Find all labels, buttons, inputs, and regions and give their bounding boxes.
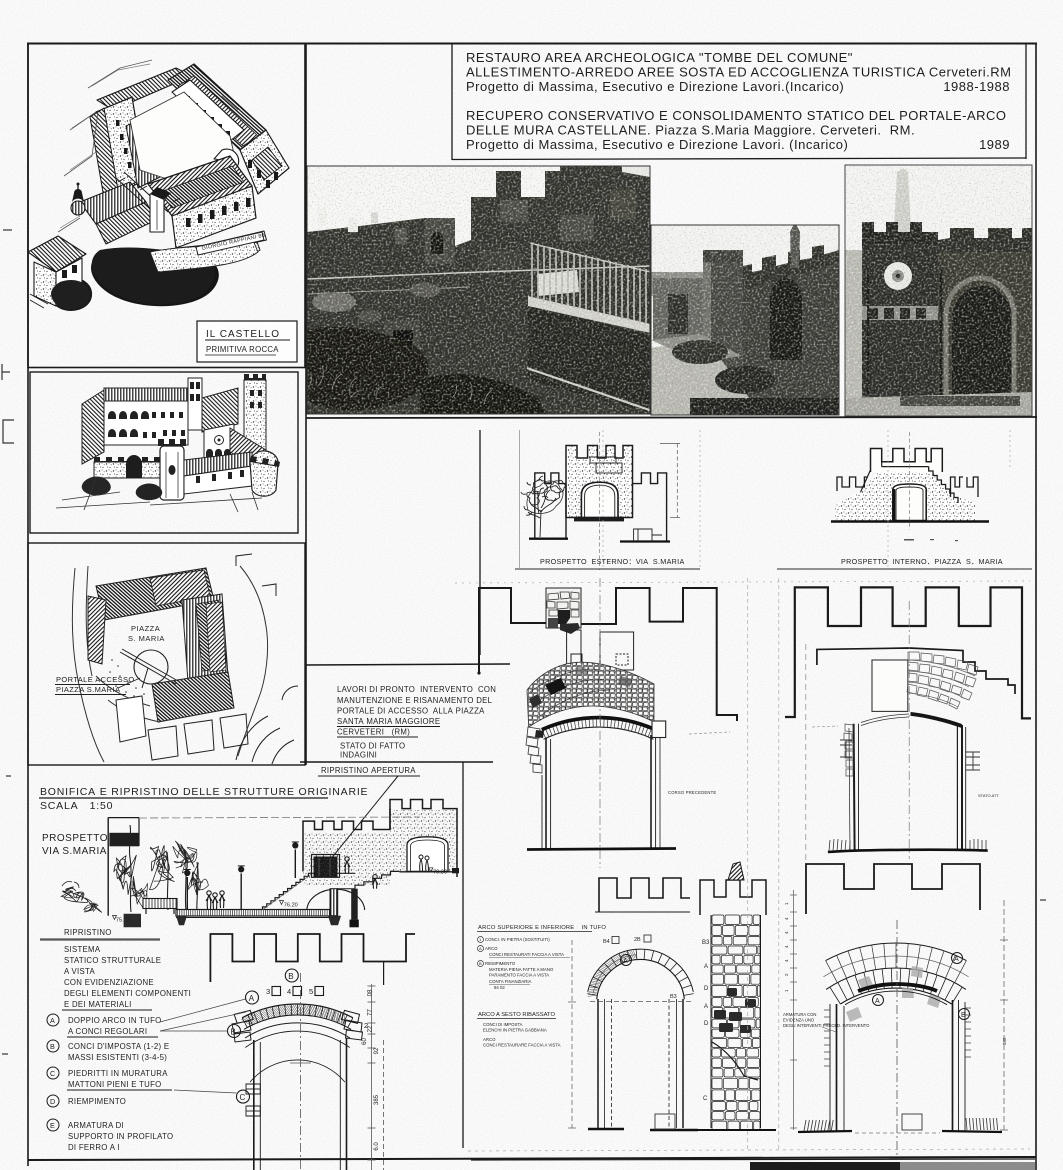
svg-text:DOPPIO ARCO IN TUFO: DOPPIO ARCO IN TUFO: [68, 1016, 162, 1025]
svg-text:DEGLI INTERVENTI PRECED. INTER: DEGLI INTERVENTI PRECED. INTERVENTO: [783, 1023, 870, 1028]
svg-text:SUPPORTO IN PROFILATO: SUPPORTO IN PROFILATO: [68, 1132, 173, 1141]
svg-text:STATO DI FATTO: STATO DI FATTO: [340, 742, 405, 751]
svg-text:A: A: [50, 1016, 55, 1025]
svg-text:INDAGINI: INDAGINI: [340, 751, 377, 760]
svg-text:DI FERRO A I: DI FERRO A I: [68, 1143, 120, 1152]
svg-text:PIAZZA S.MARIA: PIAZZA S.MARIA: [56, 685, 120, 694]
svg-text:ARCO: ARCO: [485, 946, 498, 951]
svg-text:A: A: [479, 946, 482, 951]
svg-text:ELENCHI IN PIETRA GABBIANA: ELENCHI IN PIETRA GABBIANA: [483, 1028, 547, 1033]
svg-text:B: B: [231, 1027, 236, 1036]
svg-text:6.0: 6.0: [374, 1142, 380, 1151]
svg-text:3: 3: [266, 987, 270, 996]
svg-text:B: B: [288, 972, 293, 981]
svg-text:1988-1988: 1988-1988: [943, 79, 1010, 94]
svg-text:B3: B3: [670, 994, 677, 1000]
svg-text:LAVORI DI PRONTO INTERVENTO: LAVORI DI PRONTO INTERVENTO CON: [337, 685, 496, 694]
svg-text:B: B: [479, 961, 482, 966]
svg-text:RIPRISTINO: RIPRISTINO: [64, 928, 112, 937]
svg-text:S. MARIA: S. MARIA: [128, 634, 165, 643]
svg-text:MASSI ESISTENTI (3-4-5): MASSI ESISTENTI (3-4-5): [68, 1053, 167, 1062]
svg-text:D: D: [704, 986, 709, 992]
svg-text:22: 22: [368, 1025, 374, 1032]
svg-text:Progetto di Massima, Esecutivo: Progetto di Massima, Esecutivo e Direzio…: [466, 137, 848, 152]
svg-text:E: E: [50, 1121, 55, 1130]
svg-text:SCALA 1:50: SCALA 1:50: [40, 800, 113, 812]
svg-text:385: 385: [374, 1094, 380, 1105]
svg-text:A: A: [875, 998, 880, 1005]
svg-text:BONIFICA E RIPRISTINO DELLE ST: BONIFICA E RIPRISTINO DELLE STRUTTURE OR…: [40, 786, 368, 798]
svg-text:75.72: 75.72: [116, 918, 130, 924]
svg-text:RIEMPIMENTO: RIEMPIMENTO: [68, 1097, 126, 1106]
svg-text:B: B: [50, 1042, 55, 1051]
svg-text:A VISTA: A VISTA: [64, 967, 95, 976]
svg-text:STATICO STRUTTURALE: STATICO STRUTTURALE: [64, 956, 161, 965]
svg-text:D: D: [704, 1021, 709, 1027]
svg-text:CONCI RESTAURATI FACCIA A VIS: CONCI RESTAURATI FACCIA A VISTA: [489, 952, 564, 957]
svg-text:PIAZZA: PIAZZA: [131, 624, 160, 633]
svg-text:CORSO PRECEDENTE: CORSO PRECEDENTE: [668, 790, 716, 795]
svg-text:SISTEMA: SISTEMA: [64, 945, 101, 954]
svg-text:1989: 1989: [979, 137, 1010, 152]
svg-text:B4: B4: [603, 939, 610, 945]
svg-text:EVIDENZA UNO: EVIDENZA UNO: [783, 1018, 815, 1023]
svg-text:2B: 2B: [634, 937, 641, 943]
svg-text:CONCI D'IMPOSTA (1-2) E: CONCI D'IMPOSTA (1-2) E: [68, 1042, 169, 1051]
svg-text:C: C: [240, 1093, 246, 1102]
svg-text:B3: B3: [702, 940, 710, 946]
svg-text:PRIMITIVA ROCCA: PRIMITIVA ROCCA: [206, 345, 279, 354]
svg-text:84 02: 84 02: [494, 985, 505, 990]
svg-text:A: A: [704, 1004, 708, 1010]
svg-text:CONCI RESTAURARE FACCIA A VIS: CONCI RESTAURARE FACCIA A VISTA: [483, 1043, 561, 1048]
svg-text:STATO ATT.: STATO ATT.: [978, 793, 999, 798]
svg-text:MANUTENZIONE E RISANAMENTO DEL: MANUTENZIONE E RISANAMENTO DEL: [337, 696, 493, 705]
svg-text:Progetto di Massima, Esecutivo: Progetto di Massima, Esecutivo e Direzio…: [466, 79, 844, 94]
svg-text:ARMATURA DI: ARMATURA DI: [68, 1121, 124, 1130]
svg-text:RIPRISTINO APERTURA: RIPRISTINO APERTURA: [321, 766, 416, 775]
svg-text:08: 08: [368, 989, 374, 996]
svg-text:RESTAURO AREA ARCHEOLOGICA "TO: RESTAURO AREA ARCHEOLOGICA "TOMBE DEL CO…: [466, 50, 853, 65]
svg-text:MATTONI PIENI E TUFO: MATTONI PIENI E TUFO: [68, 1080, 162, 1089]
svg-text:ARCO SUPERIORE E INFERIORE: ARCO SUPERIORE E INFERIORE IN TUFO: [478, 925, 606, 931]
svg-text:CERVETERI (RM): CERVETERI (RM): [337, 728, 410, 737]
svg-text:5: 5: [309, 987, 313, 996]
svg-text:PIEDRITTI IN MURATURA: PIEDRITTI IN MURATURA: [68, 1069, 168, 1078]
svg-text:RECUPERO CONSERVATIVO E CONSOL: RECUPERO CONSERVATIVO E CONSOLIDAMENTO S…: [466, 108, 1007, 123]
svg-text:60: 60: [362, 1038, 368, 1045]
svg-text:MATERIA PIENA FATTE A MANO: MATERIA PIENA FATTE A MANO: [489, 967, 554, 972]
svg-text:A CONCI REGOLARI: A CONCI REGOLARI: [68, 1027, 147, 1036]
svg-text:DEGLI ELEMENTI COMPONENTI: DEGLI ELEMENTI COMPONENTI: [64, 989, 191, 998]
svg-text:92: 92: [374, 1047, 380, 1054]
svg-text:VIA S.MARIA: VIA S.MARIA: [42, 846, 107, 857]
svg-text:76.20: 76.20: [284, 903, 298, 909]
svg-text:IL CASTELLO: IL CASTELLO: [206, 329, 280, 340]
svg-text:A: A: [954, 956, 959, 963]
svg-text:ARMATURA CON: ARMATURA CON: [783, 1012, 816, 1017]
svg-text:A: A: [623, 958, 628, 965]
svg-text:PORTALE ACCESSO: PORTALE ACCESSO: [56, 675, 135, 684]
svg-text:ALLESTIMENTO-ARREDO AREE SOSTA: ALLESTIMENTO-ARREDO AREE SOSTA ED ACCOGL…: [466, 65, 1011, 80]
svg-text:ARCO A SESTO RIBASSATO: ARCO A SESTO RIBASSATO: [478, 1012, 555, 1018]
svg-text:DELLE MURA CASTELLANE. Piazza: DELLE MURA CASTELLANE. Piazza S.Maria Ma…: [466, 123, 915, 138]
svg-text:CONCI. IN PIETRA (SOSTITUITI): CONCI. IN PIETRA (SOSTITUITI): [485, 937, 550, 942]
svg-text:CONCI DI IMPOSTA: CONCI DI IMPOSTA: [483, 1022, 523, 1027]
svg-text:CON EVIDENZIAZIONE: CON EVIDENZIAZIONE: [64, 978, 154, 987]
svg-text:CONTA FINANZIARIA: CONTA FINANZIARIA: [489, 979, 532, 984]
svg-text:A: A: [249, 994, 255, 1003]
svg-text:PARAMENTO FACCIA A VISTA: PARAMENTO FACCIA A VISTA: [489, 973, 549, 978]
svg-text:PROSPETTO: PROSPETTO: [42, 833, 108, 844]
svg-text:77: 77: [368, 1009, 374, 1016]
svg-text:RIEMPIMENTO: RIEMPIMENTO: [485, 961, 516, 966]
svg-text:PROSPETTO ESTERNO：VIA S.MARI: PROSPETTO ESTERNO：VIA S.MARIA: [540, 557, 685, 566]
svg-text:E DEI MATERIALI: E DEI MATERIALI: [64, 1000, 132, 1009]
svg-text:C: C: [50, 1069, 56, 1078]
svg-text:ARCO: ARCO: [483, 1037, 496, 1042]
svg-text:C: C: [703, 1096, 708, 1102]
svg-text:A: A: [704, 964, 708, 970]
svg-text:PROSPETTO INTERNO．PIAZZA S．M: PROSPETTO INTERNO．PIAZZA S．MARIA: [841, 557, 1003, 566]
svg-text:385: 385: [1002, 1037, 1007, 1045]
svg-text:79.30: 79.30: [433, 870, 447, 876]
svg-text:4: 4: [287, 987, 291, 996]
svg-text:PORTALE DI ACCESSO ALLA PIAZZ: PORTALE DI ACCESSO ALLA PIAZZA: [337, 707, 485, 716]
svg-text:SANTA MARIA MAGGIORE: SANTA MARIA MAGGIORE: [337, 717, 440, 726]
svg-text:D: D: [50, 1097, 56, 1106]
